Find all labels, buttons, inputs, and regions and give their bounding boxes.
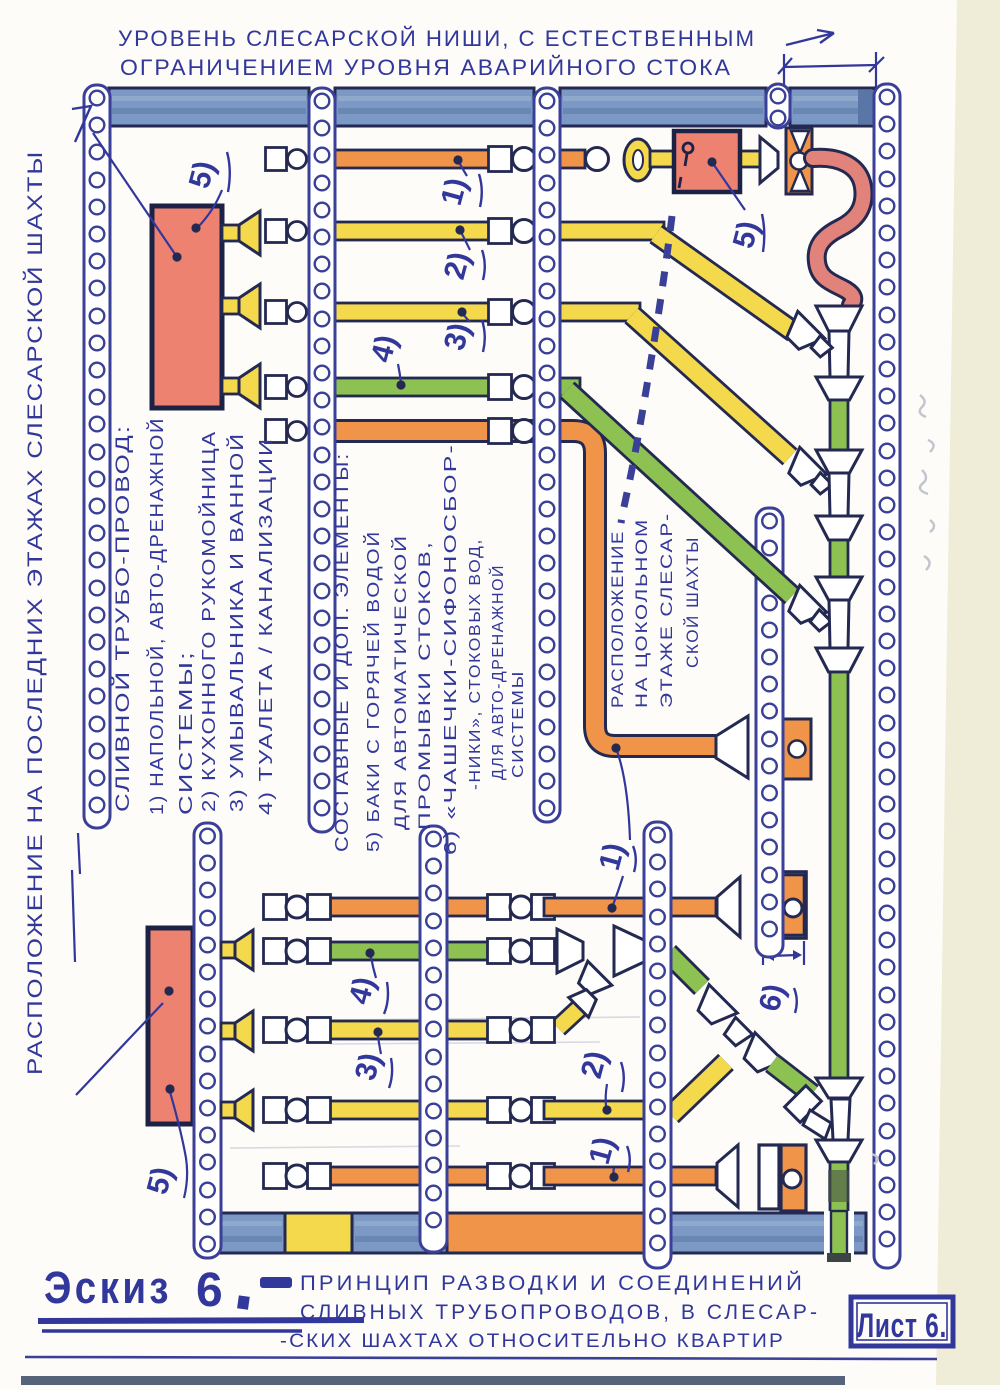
svg-text:СИСТЕМЫ: СИСТЕМЫ [510,670,527,778]
svg-text:2) КУХОННОГО РУКОМОЙНИЦА: 2) КУХОННОГО РУКОМОЙНИЦА [198,430,219,812]
svg-text:РАСПОЛОЖЕНИЕ НА ПОСЛЕДНИХ ЭТАЖ: РАСПОЛОЖЕНИЕ НА ПОСЛЕДНИХ ЭТАЖАХ СЛЕСАРС… [22,150,47,1075]
svg-text:Эскиз: Эскиз [44,1262,172,1313]
svg-text:СКОЙ ШАХТЫ: СКОЙ ШАХТЫ [683,536,702,668]
svg-text:-СКИХ ШАХТАХ ОТНОСИТЕЛЬНО КВАР: -СКИХ ШАХТАХ ОТНОСИТЕЛЬНО КВАРТИР [280,1331,785,1352]
svg-text:1) НАПОЛЬНОЙ, АВТО-ДРЕНАЖНОЙ: 1) НАПОЛЬНОЙ, АВТО-ДРЕНАЖНОЙ [146,417,167,815]
svg-text:Лист 6.: Лист 6. [857,1307,947,1345]
svg-text:УРОВЕНЬ СЛЕСАРСКОЙ НИШИ, С ЕСТ: УРОВЕНЬ СЛЕСАРСКОЙ НИШИ, С ЕСТЕСТВЕННЫМ [118,26,756,51]
svg-text:4) ТУАЛЕТА / КАНАЛИЗАЦИИ: 4) ТУАЛЕТА / КАНАЛИЗАЦИИ [256,437,276,815]
svg-text:ДЛЯ АВТОМАТИЧЕСКОЙ: ДЛЯ АВТОМАТИЧЕСКОЙ [391,534,410,830]
svg-text:ДЛЯ АВТО-ДРЕНАЖНОЙ: ДЛЯ АВТО-ДРЕНАЖНОЙ [489,564,507,780]
svg-text:СИСТЕМЫ;: СИСТЕМЫ; [176,650,196,815]
svg-text:5) БАКИ С ГОРЯЧЕЙ ВОДОЙ: 5) БАКИ С ГОРЯЧЕЙ ВОДОЙ [362,530,383,852]
svg-text:СЛИВНОЙ ТРУБО-ПРОВОД:: СЛИВНОЙ ТРУБО-ПРОВОД: [112,424,134,812]
svg-text:3) УМЫВАЛЬНИКА И ВАННОЙ: 3) УМЫВАЛЬНИКА И ВАННОЙ [226,432,247,812]
svg-text:ПРИНЦИП РАЗВОДКИ И СОЕДИНЕНИЙ: ПРИНЦИП РАЗВОДКИ И СОЕДИНЕНИЙ [300,1271,805,1295]
svg-text:6) «ЧАШЕЧКИ-СИФОНОСБОР-: 6) «ЧАШЕЧКИ-СИФОНОСБОР- [440,443,460,855]
svg-text:ЭТАЖЕ СЛЕСАР-: ЭТАЖЕ СЛЕСАР- [657,512,676,708]
svg-text:ОГРАНИЧЕНИЕМ УРОВНЯ АВАРИЙНОГО: ОГРАНИЧЕНИЕМ УРОВНЯ АВАРИЙНОГО СТОКА [120,55,732,80]
svg-text:-НИКИ», СТОКОВЫХ ВОД,: -НИКИ», СТОКОВЫХ ВОД, [467,538,484,790]
svg-text:НА ЦОКОЛЬНОМ: НА ЦОКОЛЬНОМ [632,518,651,708]
svg-text:ПРОМЫВКИ СТОКОВ,: ПРОМЫВКИ СТОКОВ, [415,540,434,830]
svg-text:6: 6 [196,1264,225,1317]
svg-text:СЛИВНЫХ ТРУБОПРОВОДОВ, В СЛЕСА: СЛИВНЫХ ТРУБОПРОВОДОВ, В СЛЕСАР- [300,1301,820,1324]
svg-text:РАСПОЛОЖЕНИЕ: РАСПОЛОЖЕНИЕ [608,530,627,708]
svg-text:СОСТАВНЫЕ И ДОП. ЭЛЕМЕНТЫ:: СОСТАВНЫЕ И ДОП. ЭЛЕМЕНТЫ: [331,452,352,852]
